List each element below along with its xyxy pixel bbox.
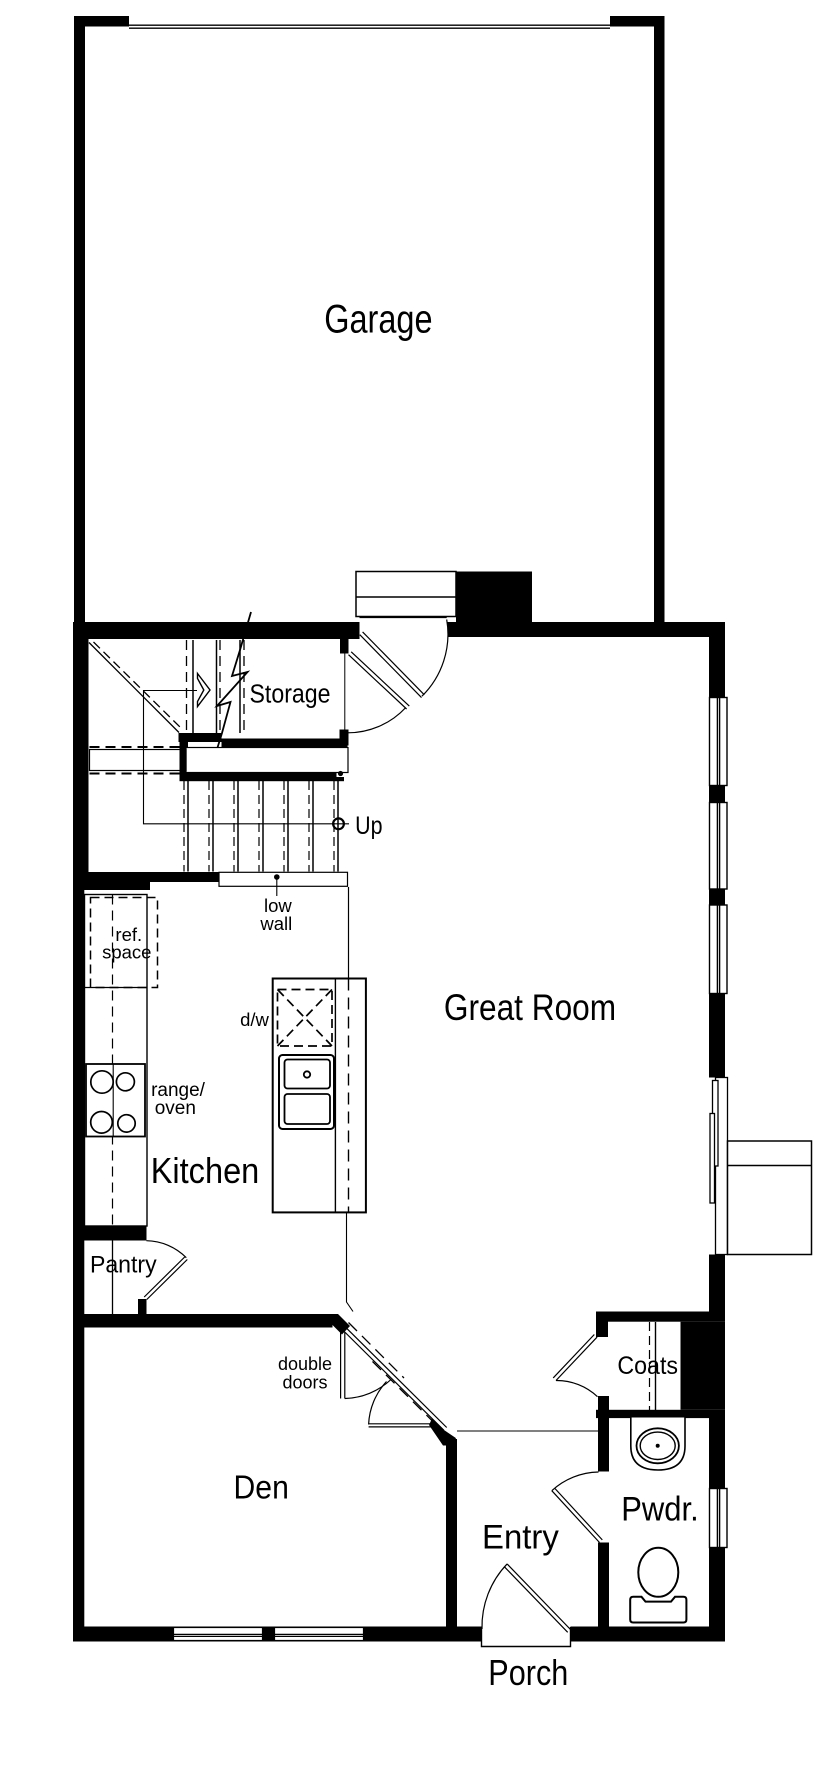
svg-text:Kitchen: Kitchen (151, 1150, 260, 1191)
svg-text:Pantry: Pantry (90, 1252, 157, 1279)
svg-text:double: double (278, 1354, 332, 1374)
svg-text:wall: wall (259, 913, 292, 934)
svg-text:Up: Up (355, 812, 382, 840)
svg-text:doors: doors (282, 1373, 327, 1393)
svg-text:Den: Den (234, 1469, 289, 1507)
svg-text:oven: oven (155, 1098, 196, 1119)
svg-text:Entry: Entry (482, 1519, 560, 1557)
svg-text:Coats: Coats (617, 1352, 678, 1380)
svg-text:d/w: d/w (240, 1009, 269, 1030)
svg-text:Garage: Garage (324, 298, 432, 342)
svg-text:Great Room: Great Room (444, 987, 616, 1028)
svg-text:Pwdr.: Pwdr. (621, 1490, 698, 1528)
svg-text:Porch: Porch (488, 1653, 568, 1693)
svg-text:space: space (102, 942, 151, 963)
svg-text:Storage: Storage (250, 678, 331, 708)
